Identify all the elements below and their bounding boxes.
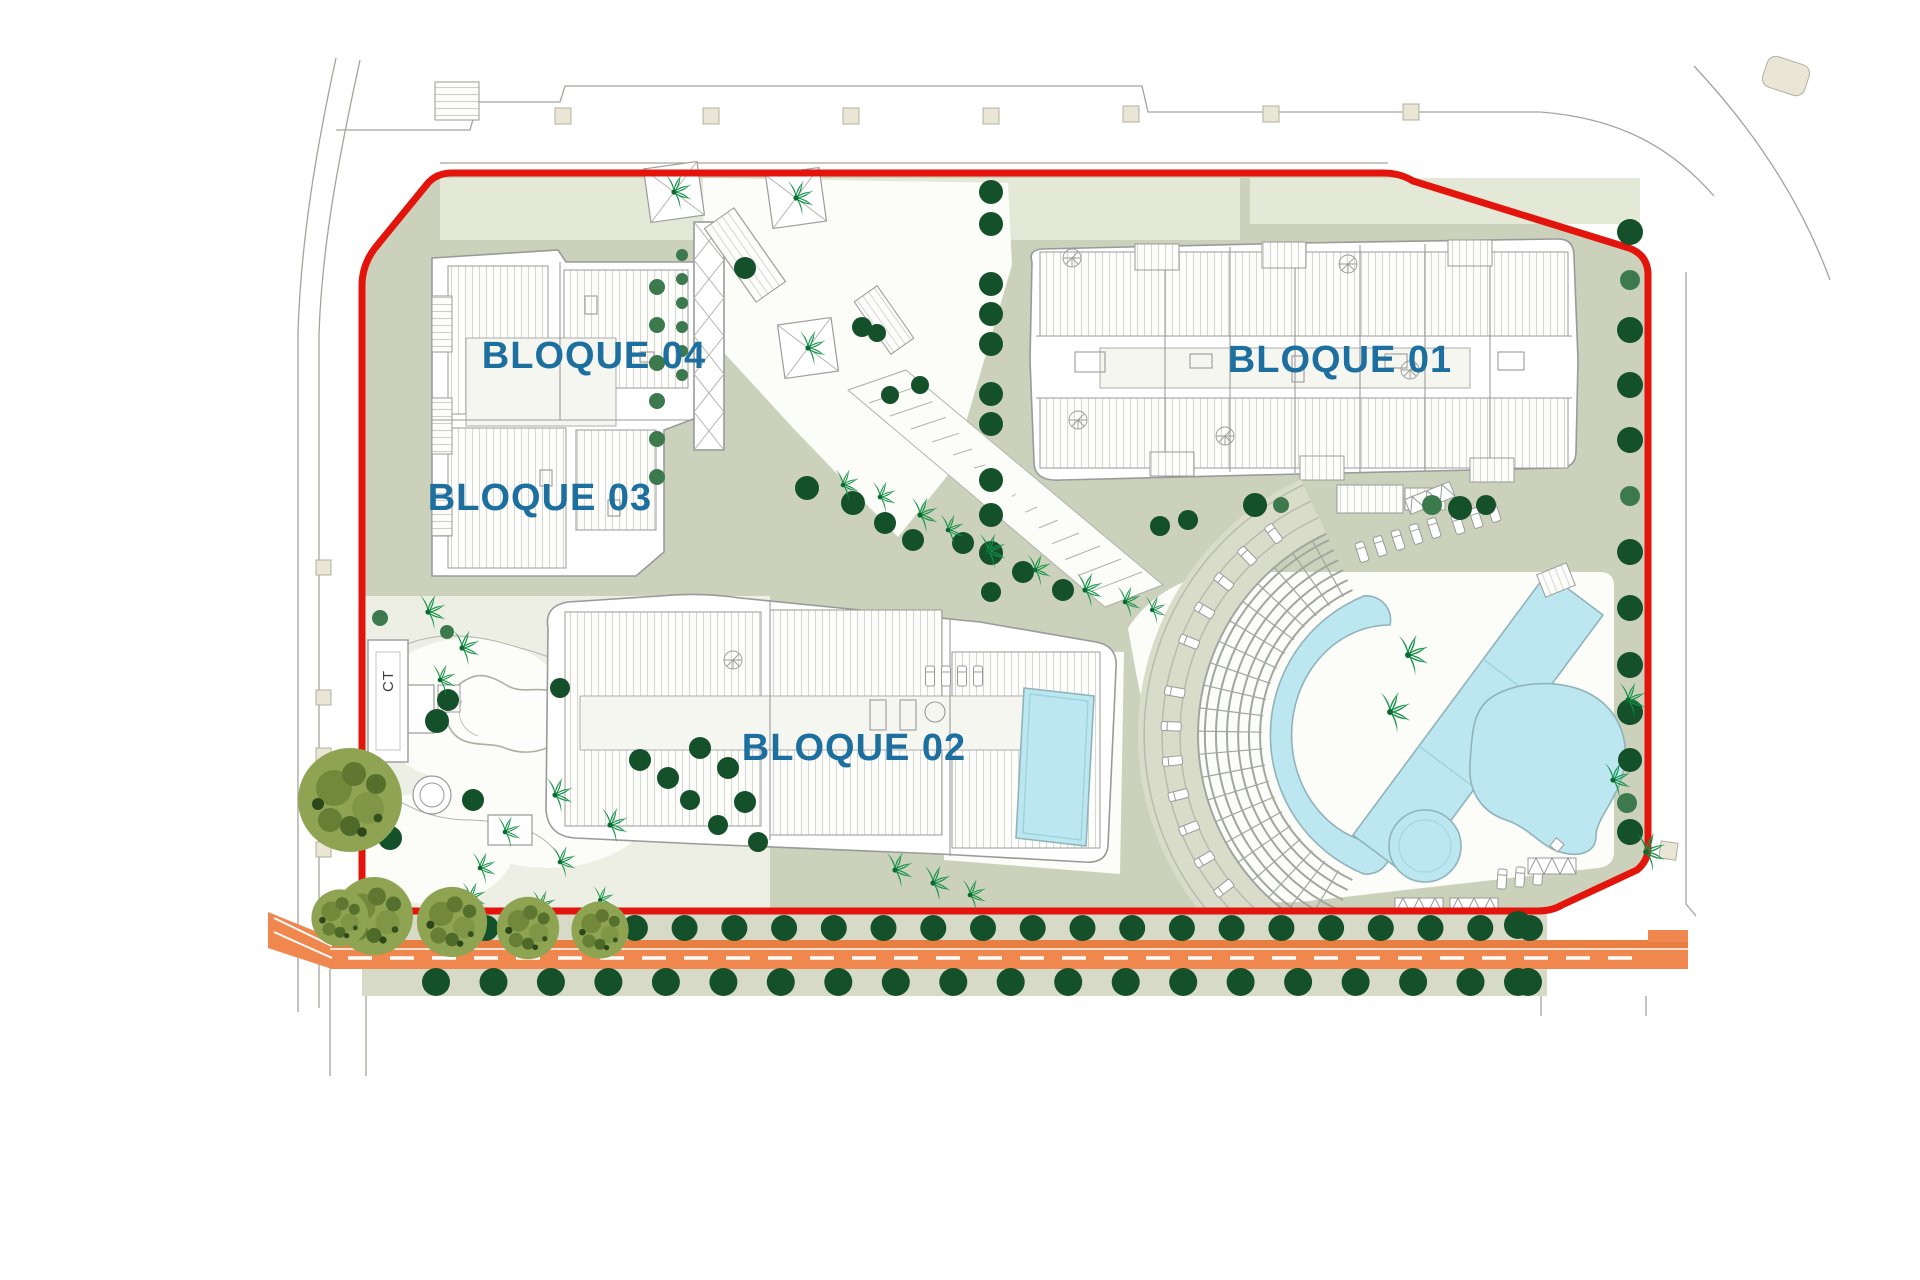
ct-label: CT [380, 670, 397, 692]
block-03-label: BLOQUE 03 [428, 477, 652, 519]
round-pool [1389, 810, 1461, 882]
block-01-label: BLOQUE 01 [1228, 339, 1452, 381]
crosswalk [435, 82, 479, 120]
block-04-label: BLOQUE 04 [482, 335, 706, 377]
transformer-ct [368, 640, 408, 762]
block-02-label: BLOQUE 02 [742, 727, 966, 769]
building-block-04-03 [432, 250, 696, 576]
block-02-pool [1016, 688, 1094, 846]
site-plan-page: BLOQUE 04 BLOQUE 03 BLOQUE 01 BLOQUE 02 … [0, 0, 1920, 1280]
external-stair [1337, 485, 1403, 513]
site-plan-drawing: BLOQUE 04 BLOQUE 03 BLOQUE 01 BLOQUE 02 … [0, 0, 1920, 1280]
